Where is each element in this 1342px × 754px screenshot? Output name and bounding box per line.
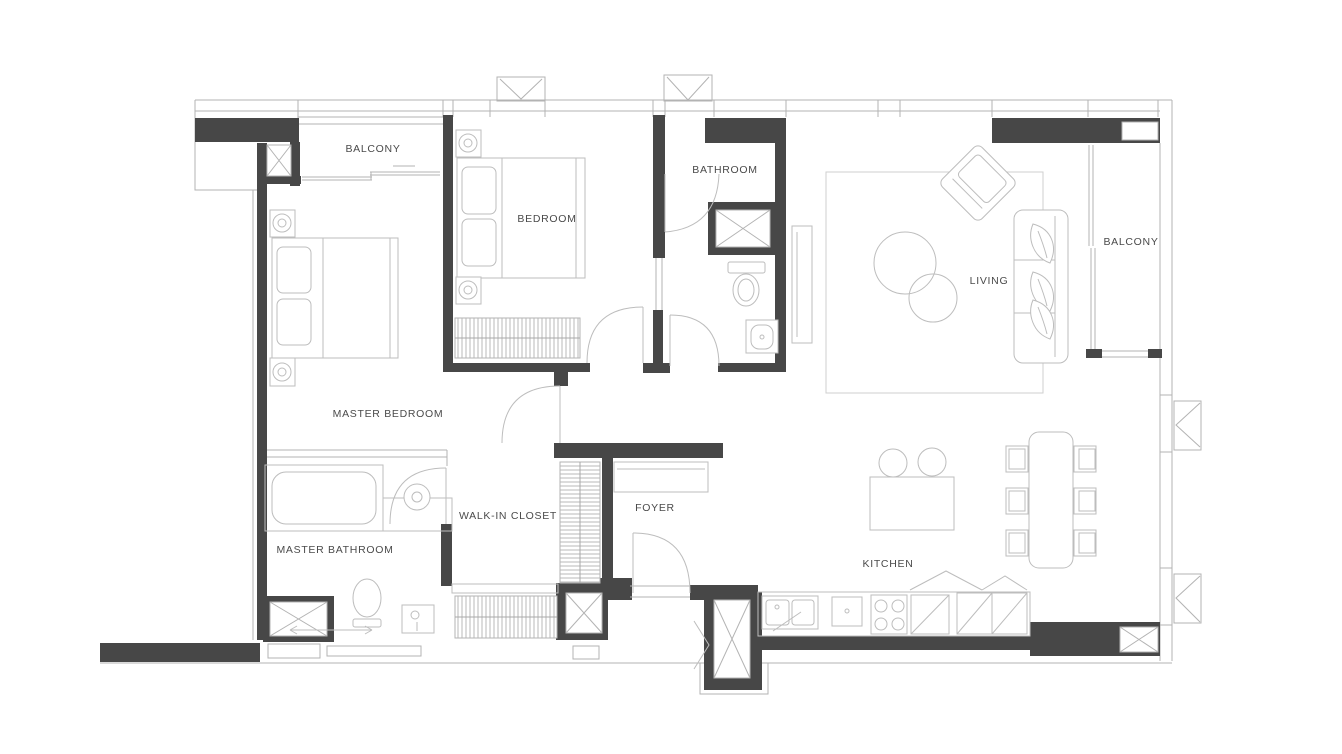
vent-box-right-2 bbox=[1174, 574, 1201, 623]
vent-box-right-1 bbox=[1174, 401, 1201, 450]
room-label-balcony-left: BALCONY bbox=[345, 143, 400, 155]
bathroom-sink bbox=[746, 320, 778, 353]
master-bedroom-furniture bbox=[270, 210, 398, 386]
windows-master-bath bbox=[268, 644, 421, 658]
room-label-kitchen: KITCHEN bbox=[863, 558, 914, 570]
vent-box-top-1 bbox=[497, 77, 545, 101]
master-bed bbox=[272, 238, 398, 358]
floor-plan-drawing bbox=[0, 0, 1342, 754]
shaft-top-left bbox=[267, 145, 291, 176]
armchair bbox=[938, 143, 1017, 222]
room-label-living: LIVING bbox=[970, 275, 1009, 287]
kitchen-counter bbox=[758, 571, 1030, 636]
dining-chair bbox=[1006, 446, 1028, 472]
closet-rack-horizontal bbox=[455, 596, 557, 638]
room-label-master-bathroom: MASTER BATHROOM bbox=[276, 544, 393, 556]
nightstand bbox=[456, 277, 481, 304]
stool bbox=[918, 448, 946, 476]
bathtub bbox=[265, 465, 383, 531]
wash-basin bbox=[402, 605, 434, 633]
tv-console bbox=[792, 226, 812, 343]
living-furniture bbox=[792, 143, 1068, 393]
shaft-closet bbox=[566, 593, 602, 659]
closet-rack-vertical bbox=[560, 462, 600, 583]
toilet bbox=[728, 262, 765, 306]
room-label-bathroom: BATHROOM bbox=[692, 164, 758, 176]
dining-chair bbox=[1074, 530, 1096, 556]
stool bbox=[879, 449, 907, 477]
vanity-sink bbox=[383, 484, 452, 531]
fridge bbox=[957, 593, 1027, 634]
kitchen-furniture bbox=[758, 432, 1096, 636]
dining-chair bbox=[1074, 488, 1096, 514]
room-label-master-bedroom: MASTER BEDROOM bbox=[333, 408, 444, 420]
nightstand bbox=[270, 358, 295, 386]
side-table bbox=[874, 232, 936, 294]
shaft-bottom-right bbox=[1120, 627, 1158, 652]
dining-chair bbox=[1006, 530, 1028, 556]
room-label-foyer: FOYER bbox=[635, 502, 675, 514]
dining-chair bbox=[1006, 488, 1028, 514]
foyer-console bbox=[614, 462, 708, 492]
wardrobe-rack bbox=[455, 318, 580, 358]
dining-chair bbox=[1074, 446, 1096, 472]
rug bbox=[826, 172, 1043, 393]
kitchen-island bbox=[870, 448, 954, 530]
wall-notch-top-right bbox=[1122, 122, 1158, 140]
door-master-bedroom bbox=[502, 386, 560, 443]
toilet bbox=[353, 579, 381, 627]
room-label-balcony-right: BALCONY bbox=[1103, 236, 1158, 248]
bathroom-fixtures bbox=[728, 262, 778, 353]
cooktop bbox=[871, 595, 907, 634]
room-label-bedroom: BEDROOM bbox=[517, 213, 576, 225]
dining-set bbox=[1006, 432, 1096, 568]
door-bedroom bbox=[587, 307, 643, 363]
bedroom-furniture bbox=[455, 130, 585, 358]
closet-shelf bbox=[452, 584, 558, 593]
balcony-right-railing bbox=[1089, 145, 1148, 357]
shaft-entrance bbox=[714, 600, 750, 678]
floor-plan-canvas: BALCONY BEDROOM BATHROOM LIVING BALCONY … bbox=[0, 0, 1342, 754]
door-bathroom bbox=[670, 315, 719, 366]
door-entrance bbox=[630, 533, 690, 597]
room-label-walk-in-closet: WALK-IN CLOSET bbox=[459, 510, 557, 522]
sofa bbox=[1014, 210, 1068, 363]
vent-box-top-2 bbox=[664, 75, 712, 101]
nightstand bbox=[270, 210, 295, 237]
shaft-bathroom bbox=[716, 210, 770, 247]
nightstand bbox=[456, 130, 481, 157]
side-table bbox=[909, 274, 957, 322]
shaft-master-bath bbox=[270, 602, 327, 636]
